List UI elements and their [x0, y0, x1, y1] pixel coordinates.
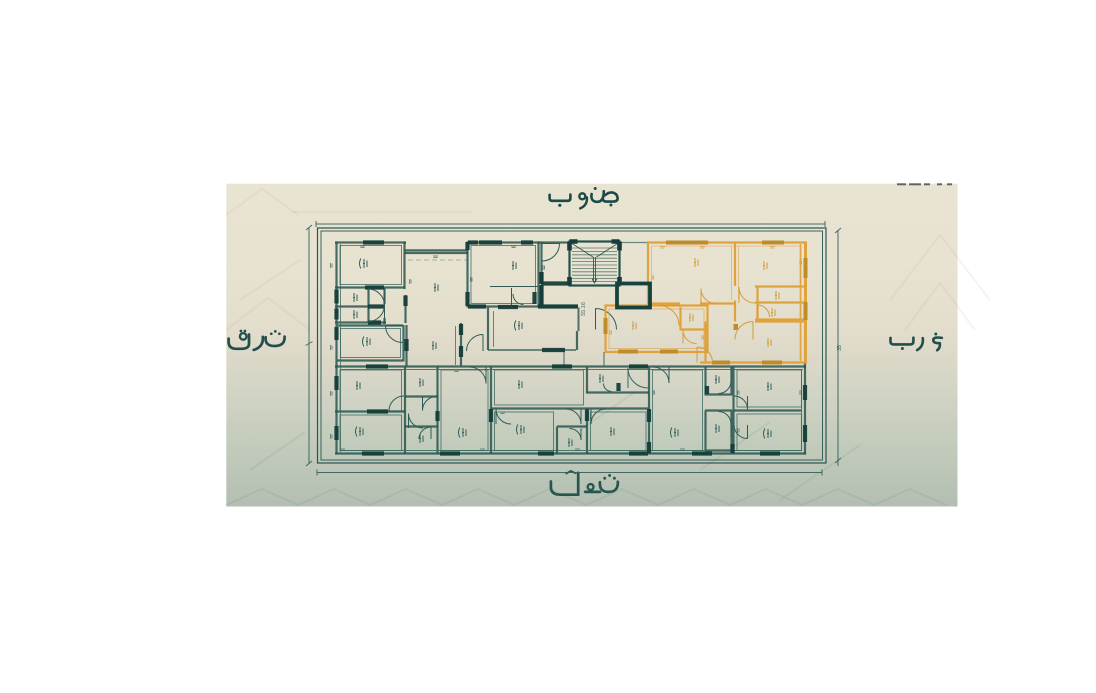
svg-text:35: 35	[837, 345, 843, 351]
svg-text:55.16: 55.16	[581, 302, 587, 316]
